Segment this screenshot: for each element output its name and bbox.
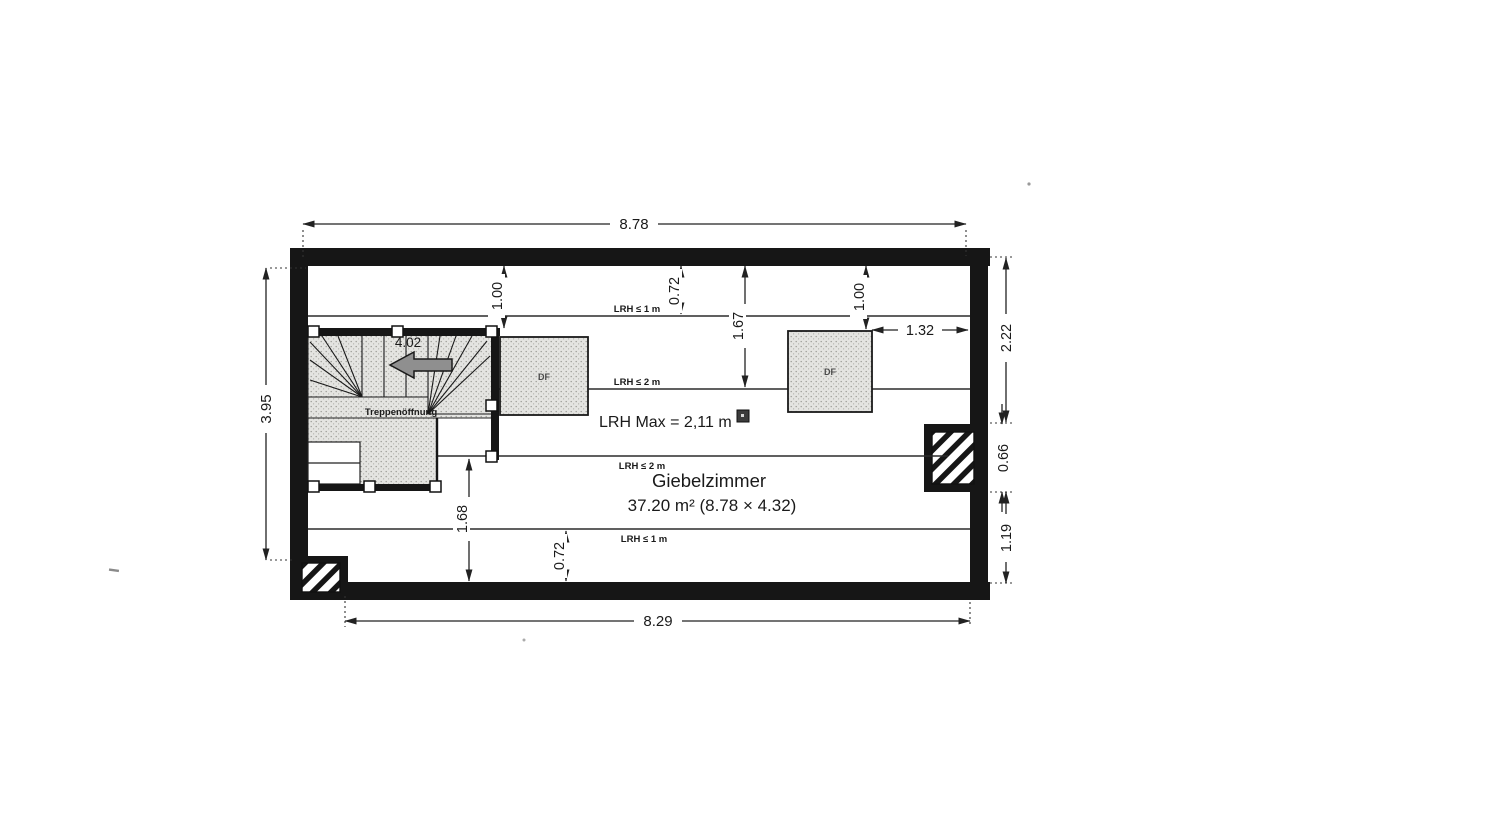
dim-chimney-height-label: 0.66 — [996, 444, 1012, 472]
roof-window-left: DF — [500, 337, 588, 415]
wall-bottom — [290, 582, 990, 600]
dim-top-lrh2-offset: 1.67 — [729, 266, 747, 387]
staircase: 4.02 Treppenöffnung — [305, 326, 500, 492]
room-name-label: Giebelzimmer — [652, 470, 766, 491]
clearance-label-1m-bottom: LRH ≤ 1 m — [621, 534, 667, 545]
floorplan-scan: LRH ≤ 1 m LRH ≤ 2 m LRH ≤ 2 m LRH ≤ 1 m — [0, 0, 1500, 823]
dim-overall-left: 3.95 — [257, 268, 275, 560]
max-clearance-marker-icon — [737, 410, 749, 422]
dim-top-lrh2-offset-label: 1.67 — [731, 312, 747, 340]
dim-right-lower: 1.19 — [997, 492, 1015, 583]
dim-bottom-lrh1-offset-label: 0.72 — [552, 542, 568, 570]
dim-top-lrh1-offset-label: 0.72 — [667, 277, 683, 305]
floorplan-drawing: LRH ≤ 1 m LRH ≤ 2 m LRH ≤ 2 m LRH ≤ 1 m — [0, 0, 1500, 823]
wall-top — [290, 248, 990, 266]
clearance-label-2m-top: LRH ≤ 2 m — [614, 377, 660, 388]
dim-top-left-inset-label: 1.00 — [490, 282, 506, 310]
roof-window-right-label: DF — [824, 367, 836, 377]
clearance-label-1m-top: LRH ≤ 1 m — [614, 304, 660, 315]
dim-overall-bottom-label: 8.29 — [643, 613, 672, 630]
dim-right-upper-label: 2.22 — [999, 324, 1015, 352]
stair-dim-label: 4.02 — [395, 335, 421, 350]
room-area-label: 37.20 m² (8.78 × 4.32) — [628, 496, 797, 515]
dim-top-left-inset: 1.00 — [488, 266, 506, 328]
max-clearance-label: LRH Max = 2,11 m — [599, 414, 732, 431]
dim-overall-left-label: 3.95 — [258, 394, 275, 423]
dim-window-right-offset: 1.32 — [872, 321, 968, 339]
dim-overall-bottom: 8.29 — [345, 612, 970, 630]
dim-bottom-lrh1-offset: 0.72 — [550, 531, 568, 581]
wall-left — [290, 248, 308, 600]
dim-window-right-offset-label: 1.32 — [906, 323, 934, 339]
roof-window-left-label: DF — [538, 372, 550, 382]
dim-bottom-lrh2-offset: 1.68 — [453, 459, 471, 581]
dim-right-upper: 2.22 — [997, 258, 1015, 422]
chimney-bottom-left — [290, 556, 348, 600]
dim-bottom-lrh2-offset-label: 1.68 — [455, 505, 471, 533]
dim-top-lrh1-offset: 0.72 — [665, 266, 683, 314]
dim-overall-top: 8.78 — [303, 215, 966, 233]
dim-chimney-height: 0.66 — [994, 404, 1012, 512]
roof-window-right: DF — [788, 331, 872, 412]
dim-top-right-inset-label: 1.00 — [852, 283, 868, 311]
chimney-bottom-left-hatch — [302, 563, 340, 592]
chimney-right-hatch — [932, 432, 974, 484]
dim-overall-top-label: 8.78 — [619, 216, 648, 233]
chimney-right — [924, 424, 988, 492]
dim-right-lower-label: 1.19 — [999, 524, 1015, 552]
dim-top-right-inset: 1.00 — [850, 266, 868, 329]
stair-rail-right — [491, 330, 499, 460]
stair-opening-label: Treppenöffnung — [365, 407, 437, 418]
